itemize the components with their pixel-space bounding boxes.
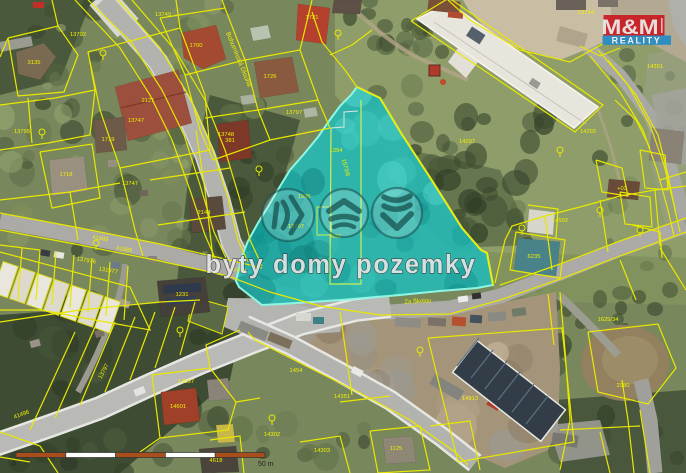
svg-text:3135: 3135 [28,60,41,66]
svg-text:1231: 1231 [176,292,189,298]
svg-text:14592: 14592 [552,218,568,224]
svg-text:14601: 14601 [170,404,186,410]
svg-text:1394: 1394 [330,148,344,154]
svg-text:Za Školou: Za Školou [404,297,431,305]
svg-text:13792: 13792 [70,32,86,38]
svg-text:byty domy pozemky: byty domy pozemky [206,251,477,279]
svg-text:1719: 1719 [102,137,115,143]
svg-text:13749: 13749 [155,12,171,18]
svg-text:13747: 13747 [122,181,138,187]
svg-text:1454: 1454 [290,368,304,374]
svg-text:1700: 1700 [190,43,203,49]
svg-text:REALITY: REALITY [612,35,662,45]
svg-text:14351: 14351 [334,394,350,400]
svg-text:13744: 13744 [578,10,595,16]
svg-text:13747: 13747 [128,118,144,124]
svg-text:14303: 14303 [314,448,330,454]
svg-text:2980: 2980 [617,383,630,389]
svg-text:1125: 1125 [390,446,402,452]
svg-text:14597: 14597 [178,379,194,385]
svg-text:13748: 13748 [218,132,234,138]
svg-text:1625/34: 1625/34 [598,317,620,323]
svg-text:14302: 14302 [264,432,280,438]
svg-text:1718: 1718 [60,172,73,178]
svg-text:4618: 4618 [210,458,223,464]
svg-text:50 m: 50 m [258,461,274,468]
svg-text:14351: 14351 [647,64,663,70]
svg-text:+03: +03 [617,186,627,192]
svg-text:1726: 1726 [264,74,277,80]
svg-text:13797: 13797 [286,110,302,116]
svg-text:13795: 13795 [14,129,30,135]
svg-text:1721: 1721 [306,15,319,21]
svg-text:6235: 6235 [528,254,541,260]
svg-text:14292: 14292 [580,129,596,135]
svg-text:2144: 2144 [198,210,212,216]
svg-text:2121: 2121 [142,98,155,104]
svg-text:14913: 14913 [462,396,478,402]
svg-text:0: 0 [12,461,16,468]
svg-text:14297: 14297 [459,139,475,145]
svg-text:381: 381 [225,138,235,144]
